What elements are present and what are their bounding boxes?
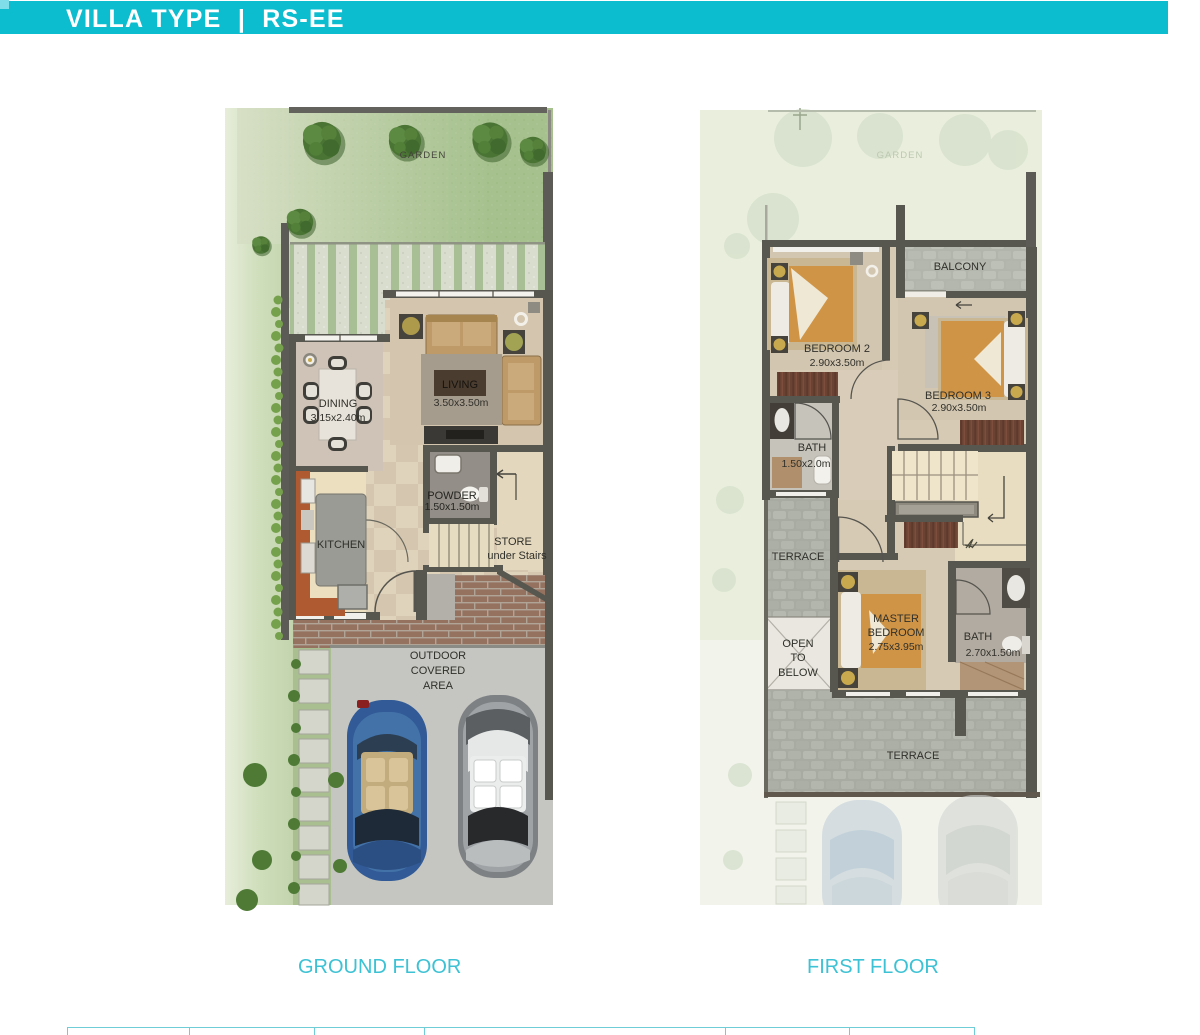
svg-text:BATH: BATH: [964, 631, 993, 643]
svg-text:AREA: AREA: [423, 680, 454, 692]
svg-text:1.50x2.0m: 1.50x2.0m: [781, 458, 830, 470]
svg-text:MASTER: MASTER: [873, 613, 919, 625]
svg-text:2.90x3.50m: 2.90x3.50m: [932, 402, 987, 414]
svg-text:GARDEN: GARDEN: [400, 150, 447, 161]
svg-text:TERRACE: TERRACE: [772, 551, 825, 563]
svg-text:TERRACE: TERRACE: [887, 750, 940, 762]
svg-text:OUTDOOR: OUTDOOR: [410, 650, 466, 662]
svg-text:STORE: STORE: [494, 536, 532, 548]
svg-text:GARDEN: GARDEN: [877, 150, 924, 161]
svg-text:BEDROOM: BEDROOM: [868, 627, 925, 639]
svg-text:3.50x3.50m: 3.50x3.50m: [434, 397, 489, 409]
svg-text:BEDROOM 2: BEDROOM 2: [804, 343, 870, 355]
svg-text:TO: TO: [790, 652, 806, 664]
svg-text:under Stairs: under Stairs: [487, 550, 547, 562]
svg-text:2.70x1.50m: 2.70x1.50m: [966, 647, 1021, 659]
svg-text:2.90x3.50m: 2.90x3.50m: [810, 357, 865, 369]
svg-text:OPEN: OPEN: [782, 638, 813, 650]
svg-text:KITCHEN: KITCHEN: [317, 539, 365, 551]
svg-text:BEDROOM 3: BEDROOM 3: [925, 390, 991, 402]
svg-text:BALCONY: BALCONY: [934, 261, 987, 273]
svg-text:3.15x2.40m: 3.15x2.40m: [311, 412, 366, 424]
svg-text:LIVING: LIVING: [442, 379, 478, 391]
svg-text:DINING: DINING: [319, 398, 358, 410]
svg-text:1.50x1.50m: 1.50x1.50m: [425, 501, 480, 513]
svg-text:COVERED: COVERED: [411, 665, 465, 677]
svg-text:BELOW: BELOW: [778, 667, 818, 679]
svg-text:2.75x3.95m: 2.75x3.95m: [869, 641, 924, 653]
svg-text:BATH: BATH: [798, 442, 827, 454]
